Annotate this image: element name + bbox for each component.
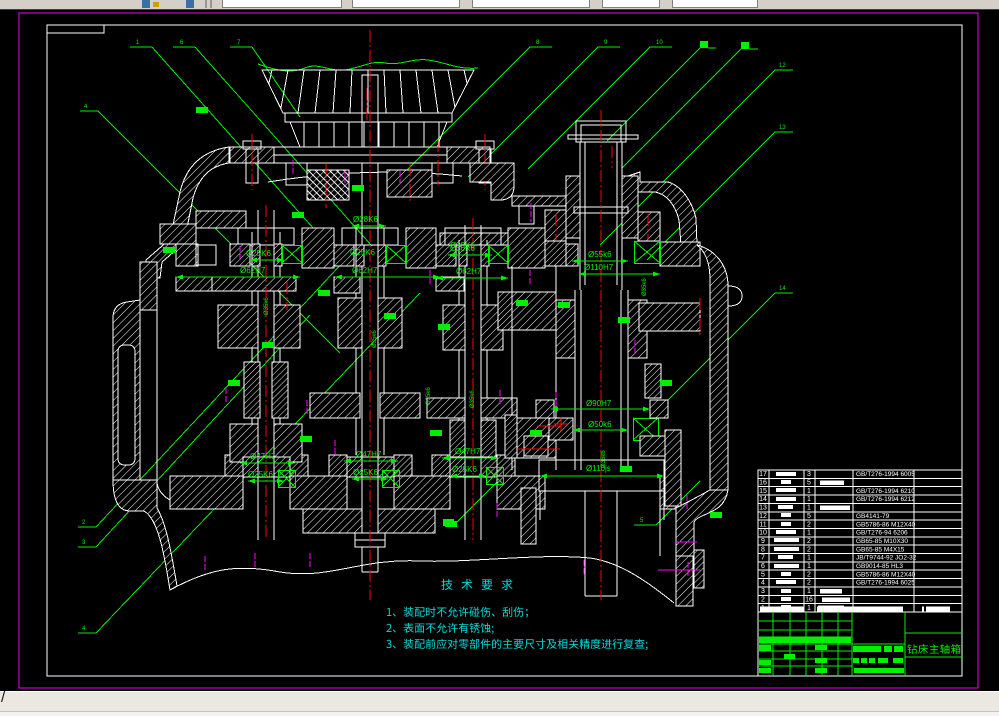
svg-text:1: 1 — [807, 605, 811, 612]
svg-text:16: 16 — [805, 596, 813, 603]
svg-text:Ø25K6: Ø25K6 — [353, 468, 378, 477]
svg-text:Ø62H7: Ø62H7 — [240, 266, 266, 275]
svg-text:13: 13 — [759, 505, 767, 512]
svg-text:1: 1 — [807, 488, 811, 495]
svg-text:1: 1 — [807, 496, 811, 503]
svg-text:12: 12 — [759, 513, 767, 520]
svg-text:2: 2 — [807, 571, 811, 578]
svg-text:10: 10 — [759, 530, 767, 537]
svg-text:Ø110js: Ø110js — [586, 464, 611, 473]
svg-text:14: 14 — [759, 496, 767, 503]
svg-text:7: 7 — [761, 555, 765, 562]
svg-text:6: 6 — [761, 563, 765, 570]
svg-text:GB/T276-1994 6025: GB/T276-1994 6025 — [856, 580, 915, 587]
svg-text:Ø25K6: Ø25K6 — [350, 248, 375, 257]
svg-text:Ø25K6: Ø25K6 — [246, 249, 271, 258]
svg-text:2: 2 — [807, 538, 811, 545]
svg-text:GB4141-79: GB4141-79 — [856, 513, 890, 520]
svg-text:Ø110H7: Ø110H7 — [584, 263, 614, 272]
svg-text:2: 2 — [761, 596, 765, 603]
svg-text:Ø47H7: Ø47H7 — [455, 447, 481, 456]
svg-text:Ø25K6: Ø25K6 — [452, 465, 477, 474]
svg-text:1: 1 — [807, 563, 811, 570]
svg-text:Ø62H7: Ø62H7 — [456, 267, 482, 276]
svg-text:2: 2 — [807, 546, 811, 553]
svg-text:Ø35k6: Ø35k6 — [426, 387, 432, 405]
svg-text:17: 17 — [759, 471, 767, 478]
svg-text:GB65-85 M4X15: GB65-85 M4X15 — [856, 546, 905, 553]
svg-text:Ø35k6: Ø35k6 — [601, 450, 607, 468]
svg-text:5: 5 — [761, 571, 765, 578]
svg-text:5: 5 — [807, 480, 811, 487]
svg-text:Ø47H7: Ø47H7 — [250, 452, 276, 461]
svg-text:Ø28K6: Ø28K6 — [353, 215, 378, 224]
svg-text:5: 5 — [807, 513, 811, 520]
svg-text:1: 1 — [807, 505, 811, 512]
svg-text:1: 1 — [807, 530, 811, 537]
svg-text:GB/T276-1994 6210: GB/T276-1994 6210 — [856, 488, 915, 495]
svg-text:8: 8 — [761, 546, 765, 553]
svg-text:Ø35k6: Ø35k6 — [372, 330, 378, 348]
svg-text:Ø90H7: Ø90H7 — [586, 399, 612, 408]
svg-text:9: 9 — [761, 538, 765, 545]
svg-text:GB5786-86 M12X40: GB5786-86 M12X40 — [856, 521, 916, 528]
svg-text:14: 14 — [779, 286, 786, 292]
svg-text:13: 13 — [779, 125, 786, 131]
svg-text:15: 15 — [759, 488, 767, 495]
svg-text:11: 11 — [759, 521, 766, 528]
svg-text:GB65-85 M10X30: GB65-85 M10X30 — [856, 538, 908, 545]
svg-text:Ø47H7: Ø47H7 — [356, 450, 382, 459]
svg-text:Ø35k6: Ø35k6 — [470, 390, 476, 408]
svg-text:GB/T276-1994 6005: GB/T276-1994 6005 — [856, 471, 915, 478]
svg-text:1: 1 — [807, 555, 811, 562]
svg-text:12: 12 — [779, 63, 786, 69]
svg-text:1: 1 — [807, 588, 811, 595]
svg-text:4: 4 — [761, 580, 765, 587]
svg-text:Ø25K6: Ø25K6 — [248, 470, 273, 479]
svg-text:3: 3 — [807, 471, 811, 478]
svg-text:Ø50k6: Ø50k6 — [588, 420, 612, 429]
svg-text:Ø62H7: Ø62H7 — [352, 266, 378, 275]
svg-text:16: 16 — [759, 480, 767, 487]
svg-text:Ø35k6: Ø35k6 — [642, 278, 648, 296]
svg-text:10: 10 — [656, 40, 663, 46]
svg-text:GB9014-85 HL3: GB9014-85 HL3 — [856, 563, 903, 570]
svg-text:GB5786-86 M12X40: GB5786-86 M12X40 — [856, 571, 916, 578]
svg-text:3: 3 — [761, 588, 765, 595]
svg-text:Ø35k6: Ø35k6 — [264, 297, 270, 315]
svg-text:JB/T9744-92 JO2-32: JB/T9744-92 JO2-32 — [856, 555, 917, 562]
svg-text:GB/T276-94 6206: GB/T276-94 6206 — [856, 530, 908, 537]
svg-text:GB/T276-1994 6212: GB/T276-1994 6212 — [856, 496, 915, 503]
svg-text:2: 2 — [807, 521, 811, 528]
svg-text:2: 2 — [807, 580, 811, 587]
svg-text:Ø55k6: Ø55k6 — [588, 250, 612, 259]
svg-text:Ø30K6: Ø30K6 — [450, 244, 475, 253]
